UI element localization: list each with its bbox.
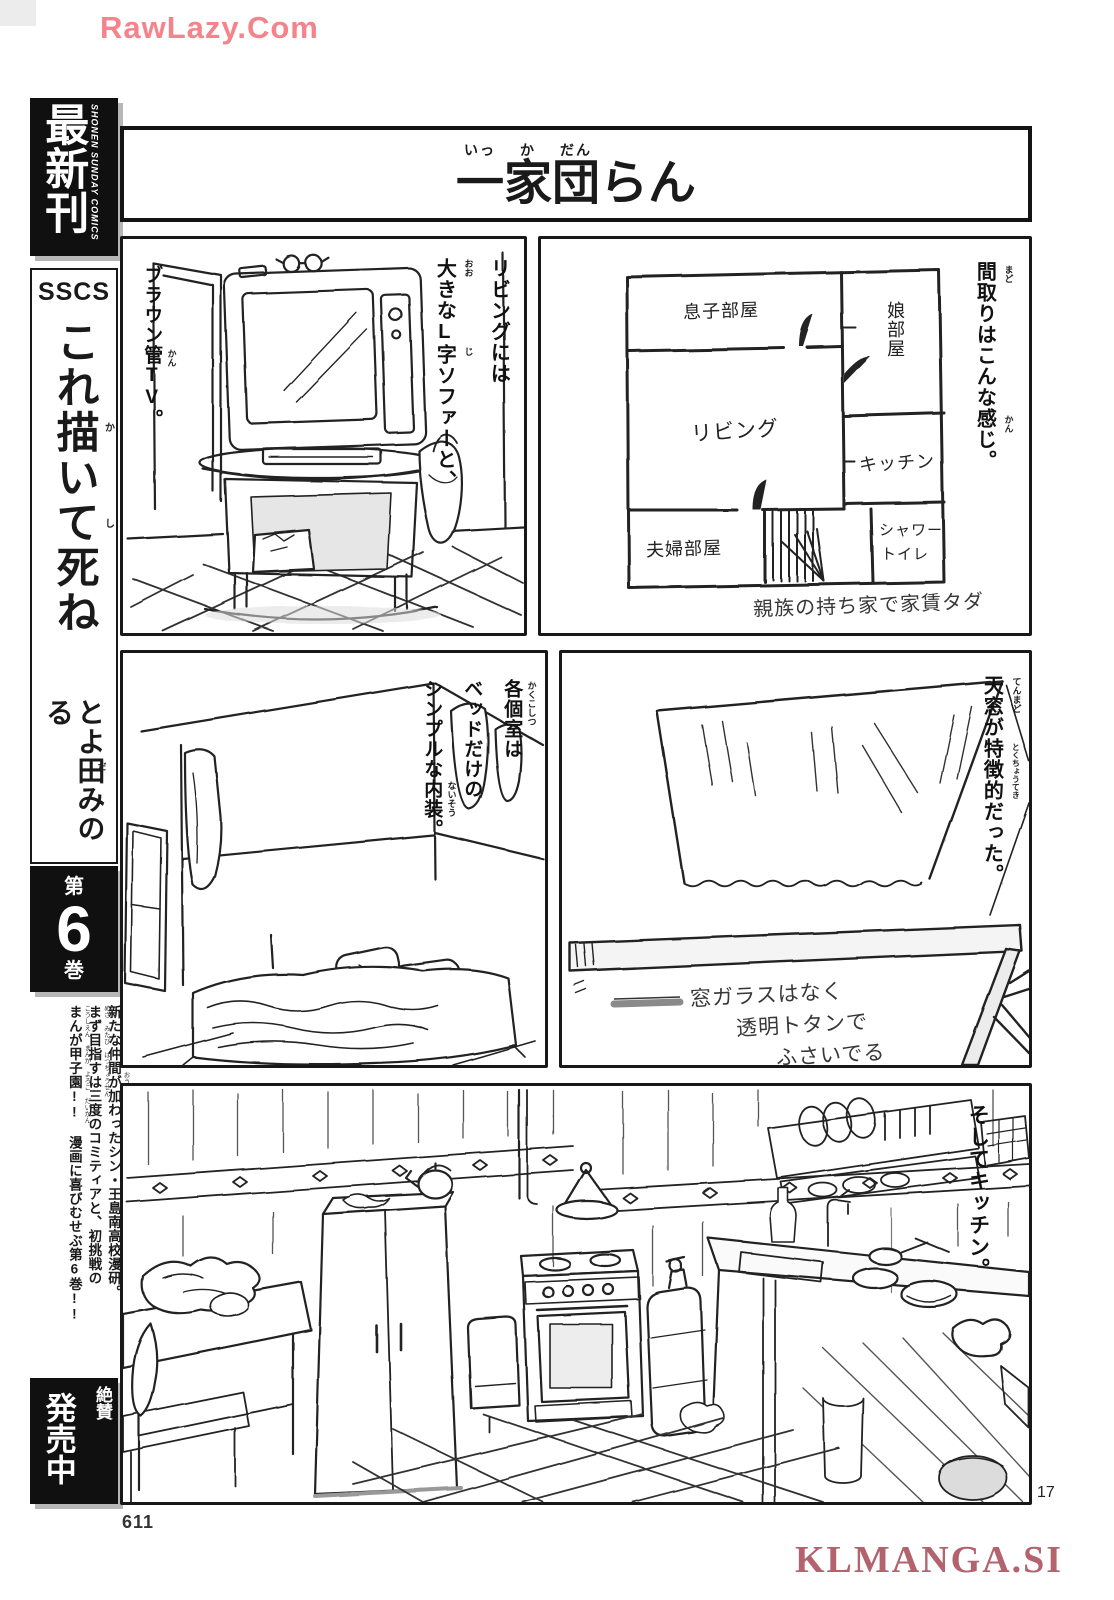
panel-floorplan: 息子部屋 娘部屋 リビング キッチン 夫婦部屋 シャワー トイレ 親族の持ち家で… bbox=[538, 236, 1032, 636]
panel-tv: ブラウン管TV。 かん リビングには 大きなL字ソファーと、 おお じ bbox=[120, 236, 527, 636]
room-label-shower-2: トイレ bbox=[881, 543, 929, 564]
sidebar-blurb: 新たな仲間が加わったシン・王島南高校漫研。 あら なかま くわ おうしまみなみこ… bbox=[28, 1005, 120, 1373]
title-char-3: 団 bbox=[552, 160, 600, 208]
title-char-4: ら bbox=[600, 160, 648, 208]
panel-skylight: 窓ガラスはなく 透明トタンで ふさいでる 天窓が特徴的だった。 てんまど とくち… bbox=[559, 650, 1032, 1068]
blurb-line-3: まんが甲子園!! 漫画に喜びむせぶ第6巻!! こうしえん まんが よろこ だいか… bbox=[66, 1005, 81, 1373]
caption-kitchen: そしてキッチン。 bbox=[966, 1104, 990, 1280]
note-arrow bbox=[610, 997, 690, 1011]
volume-suffix: 巻 bbox=[64, 961, 84, 981]
scan-corner-artifact bbox=[0, 0, 36, 26]
tv-illustration bbox=[123, 239, 524, 633]
author-furigana: だ bbox=[96, 762, 105, 771]
volume-number: 6 bbox=[56, 897, 92, 961]
furigana-kakukoshitsu: かくこしつ bbox=[526, 681, 535, 726]
book-title-furigana-shi: し bbox=[102, 518, 113, 528]
panel-kitchen: そしてキッチン。 bbox=[120, 1083, 1032, 1505]
manga-page: { "watermarks": { "top": "RawLazy.Com", … bbox=[0, 0, 1114, 1600]
caption-floorplan: 間取りはこんな感じ。 bbox=[973, 261, 995, 471]
skylight-note-3: ふさいでる bbox=[775, 1036, 886, 1072]
furigana-oo: おお bbox=[463, 259, 472, 277]
furigana-naisou: ないそう bbox=[446, 781, 455, 817]
floorplan-illustration bbox=[541, 239, 1029, 633]
caption-bedroom-1: 各個室は bbox=[501, 679, 522, 759]
panel-bedroom: 各個室は ベッドだけの シンプルな内装。 かくこしつ ないそう bbox=[120, 650, 548, 1068]
caption-living-1: リビングには bbox=[487, 258, 509, 384]
caption-skylight: 天窓が特徴的だった。 bbox=[980, 675, 1002, 885]
caption-crt-tv: ブラウン管TV。 bbox=[141, 265, 162, 429]
sidebar-book-box: SSCS これ描いて死ね か し とよ田みのる だ bbox=[30, 268, 118, 864]
blurb-text-3: まんが甲子園!! 漫画に喜びむせぶ第6巻!! bbox=[66, 1005, 81, 1322]
sidebar-banner-imprint: SHONEN SUNDAY COMICS bbox=[89, 104, 99, 256]
sidebar-banner-label: 最新刊 bbox=[38, 102, 87, 256]
page-number: 17 bbox=[1037, 1484, 1055, 1502]
furigana-kanji: かん bbox=[1003, 415, 1012, 433]
caption-bedroom-2: ベッドだけの bbox=[461, 679, 482, 799]
blurb-furigana-2: めざ みたび はつちょうせん bbox=[102, 1005, 109, 1097]
title-char-1: 一 bbox=[456, 160, 504, 208]
title-char-5: ん bbox=[648, 160, 696, 208]
author-name: とよ田みのる bbox=[43, 698, 106, 862]
sidebar-banner: 最新刊 SHONEN SUNDAY COMICS bbox=[30, 98, 118, 256]
furigana-kan: かん bbox=[166, 349, 175, 367]
room-label-couple: 夫婦部屋 bbox=[646, 534, 723, 563]
furigana-tenmado: てんまど bbox=[1011, 677, 1020, 713]
caption-bedroom-3: シンプルな内装。 bbox=[421, 679, 442, 839]
blurb-furigana-3: こうしえん まんが よろこ だいかん bbox=[82, 1005, 89, 1124]
watermark-bottom: KLMANGA.SI bbox=[795, 1538, 1063, 1582]
book-title: これ描いて死ね bbox=[50, 320, 98, 635]
room-label-son: 息子部屋 bbox=[683, 296, 760, 325]
folio-number: 611 bbox=[122, 1512, 154, 1533]
series-code: SSCS bbox=[32, 278, 116, 307]
room-label-shower-1: シャワー bbox=[879, 519, 943, 540]
onsale-small: 絶賛 bbox=[93, 1386, 112, 1420]
caption-living-2: 大きなL字ソファーと、 bbox=[433, 258, 455, 491]
furigana-tokuchouteki: とくちょうてき bbox=[1011, 743, 1019, 799]
room-label-living: リビング bbox=[690, 412, 780, 448]
watermark-top: RawLazy.Com bbox=[100, 10, 319, 46]
chapter-title-box: いっ一 か家 だん団 ら ん bbox=[120, 126, 1032, 222]
room-label-daughter: 娘部屋 bbox=[885, 301, 905, 358]
book-title-furigana-kaku: か bbox=[102, 422, 113, 432]
sidebar-onsale-box: 絶賛 発売中 bbox=[30, 1378, 118, 1504]
kitchen-illustration bbox=[123, 1086, 1029, 1502]
sidebar-volume-box: 第 6 巻 bbox=[30, 866, 118, 992]
chapter-title: いっ一 か家 だん団 ら ん bbox=[456, 140, 696, 208]
furigana-ji: じ bbox=[463, 347, 472, 356]
furigana-mado: まど bbox=[1003, 265, 1012, 283]
title-char-2: 家 bbox=[504, 160, 552, 208]
room-label-kitchen: キッチン bbox=[858, 447, 935, 477]
onsale-large: 発売中 bbox=[40, 1392, 75, 1485]
